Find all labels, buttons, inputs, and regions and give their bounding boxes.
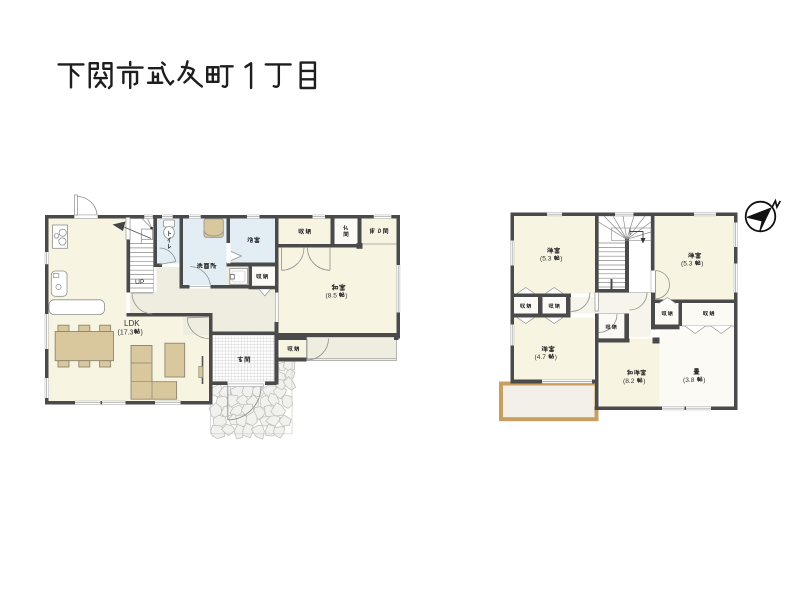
svg-text:(8.5: (8.5 xyxy=(326,293,338,300)
svg-text:): ) xyxy=(643,378,645,385)
svg-text:): ) xyxy=(701,261,703,268)
svg-text:(8.2: (8.2 xyxy=(623,378,635,385)
svg-text:): ) xyxy=(555,354,557,361)
svg-text:(4.7: (4.7 xyxy=(535,354,547,361)
svg-text:(5.3: (5.3 xyxy=(540,256,552,263)
svg-text:(3.8: (3.8 xyxy=(683,377,695,384)
svg-text:UP: UP xyxy=(135,279,145,286)
svg-text:LDK: LDK xyxy=(124,319,140,328)
svg-text:): ) xyxy=(141,330,143,337)
svg-text:(5.3: (5.3 xyxy=(681,261,693,268)
svg-text:): ) xyxy=(560,256,562,263)
svg-text:): ) xyxy=(703,377,705,384)
svg-text:): ) xyxy=(345,293,347,300)
svg-text:(17.3: (17.3 xyxy=(118,330,134,337)
